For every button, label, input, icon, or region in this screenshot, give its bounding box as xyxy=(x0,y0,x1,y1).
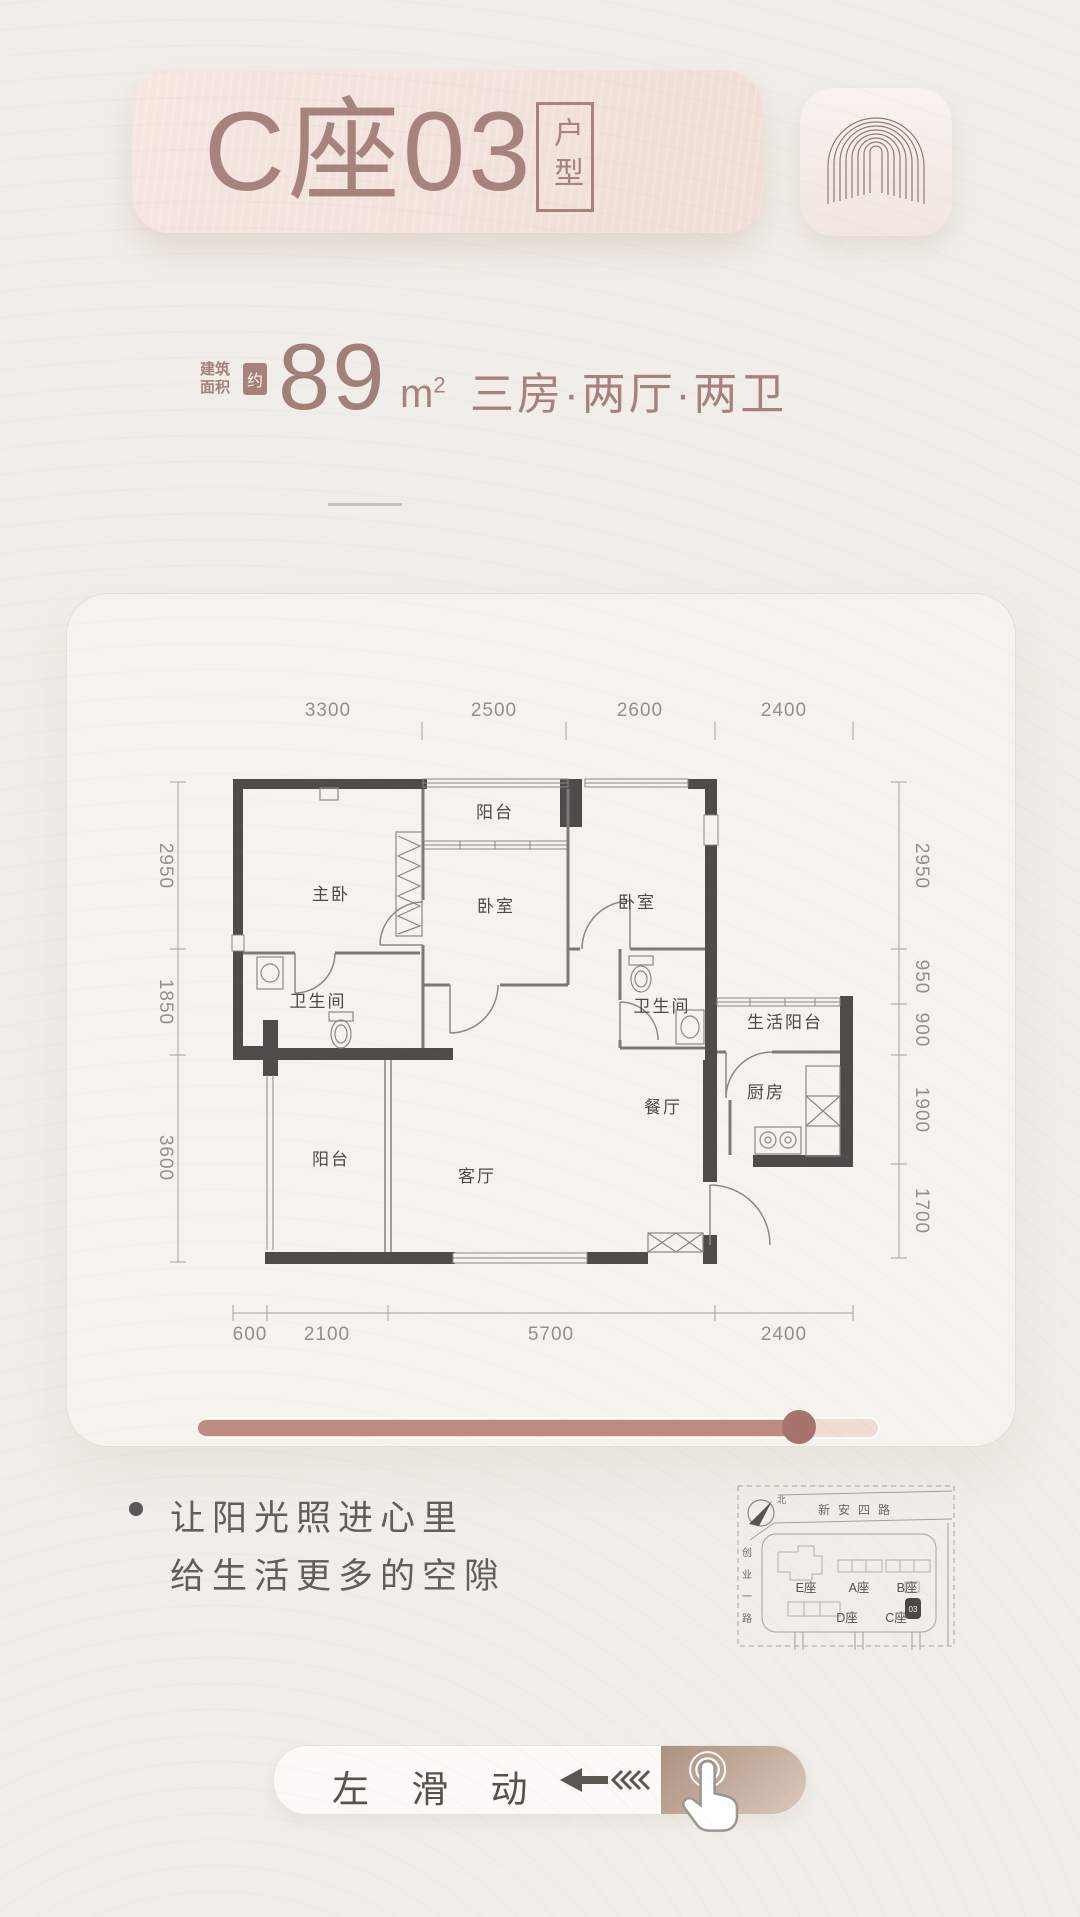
map-roads xyxy=(750,1491,952,1650)
svg-text:路: 路 xyxy=(742,1612,752,1625)
plan-scroll-progress xyxy=(198,1420,798,1436)
compass-icon: 北 xyxy=(748,1495,786,1526)
layout-summary: 三房·两厅·两卫 xyxy=(470,358,787,422)
building-B: B座 xyxy=(897,1580,918,1595)
svg-text:业: 业 xyxy=(742,1569,752,1581)
tap-hand-icon xyxy=(674,1750,758,1848)
unit-title: C座03 xyxy=(204,77,533,227)
area-unit: m2 xyxy=(400,372,446,417)
svg-text:03: 03 xyxy=(909,1605,918,1614)
area-prefix-line2: 面积 xyxy=(200,379,230,397)
area-prefix-line1: 建筑 xyxy=(200,361,230,379)
area-unit-sup: 2 xyxy=(433,373,445,398)
building-A: A座 xyxy=(849,1580,870,1595)
building-footprints xyxy=(778,1546,930,1616)
unit-type-badge-label: 户型 xyxy=(550,117,580,197)
tagline-line1: 让阳光照进心里 xyxy=(170,1490,464,1541)
road-top-label: 新安四路 xyxy=(818,1502,898,1517)
area-value: 89 xyxy=(278,330,387,424)
svg-text:创: 创 xyxy=(742,1546,752,1559)
floorplan-card xyxy=(66,593,1016,1447)
arch-lines-icon xyxy=(816,112,936,212)
building-E: E座 xyxy=(796,1580,817,1595)
area-unit-base: m xyxy=(400,372,433,416)
current-unit-marker: 03 xyxy=(905,1598,921,1619)
swipe-left-label: 左 滑 动 xyxy=(332,1759,544,1813)
unit-title-card: C座03 户型 xyxy=(132,70,763,233)
building-C: C座 xyxy=(885,1610,907,1625)
building-D: D座 xyxy=(836,1610,858,1625)
estate-boundary xyxy=(762,1534,936,1632)
bullet-dot xyxy=(129,1502,143,1516)
plan-scroll-knob[interactable] xyxy=(782,1410,816,1444)
approx-badge: 约 xyxy=(243,363,267,395)
site-map: 北 新安四路 创 业 一 路 xyxy=(738,1486,954,1650)
page: C座03 户型 建筑 面积 约 89 m2 三房·两厅·两卫 xyxy=(0,0,1080,1917)
road-left-label: 创 业 一 路 xyxy=(742,1546,752,1625)
unit-type-badge: 户型 xyxy=(536,102,594,212)
swipe-left-button[interactable]: 左 滑 动 xyxy=(273,1745,807,1815)
tagline-line2: 给生活更多的空隙 xyxy=(170,1548,506,1599)
arch-logo-tile xyxy=(800,88,952,236)
compass-north-label: 北 xyxy=(777,1495,786,1505)
svg-text:一: 一 xyxy=(742,1592,752,1603)
divider xyxy=(328,503,402,506)
area-prefix: 建筑 面积 xyxy=(200,361,230,397)
left-arrow-icon xyxy=(560,1768,664,1792)
